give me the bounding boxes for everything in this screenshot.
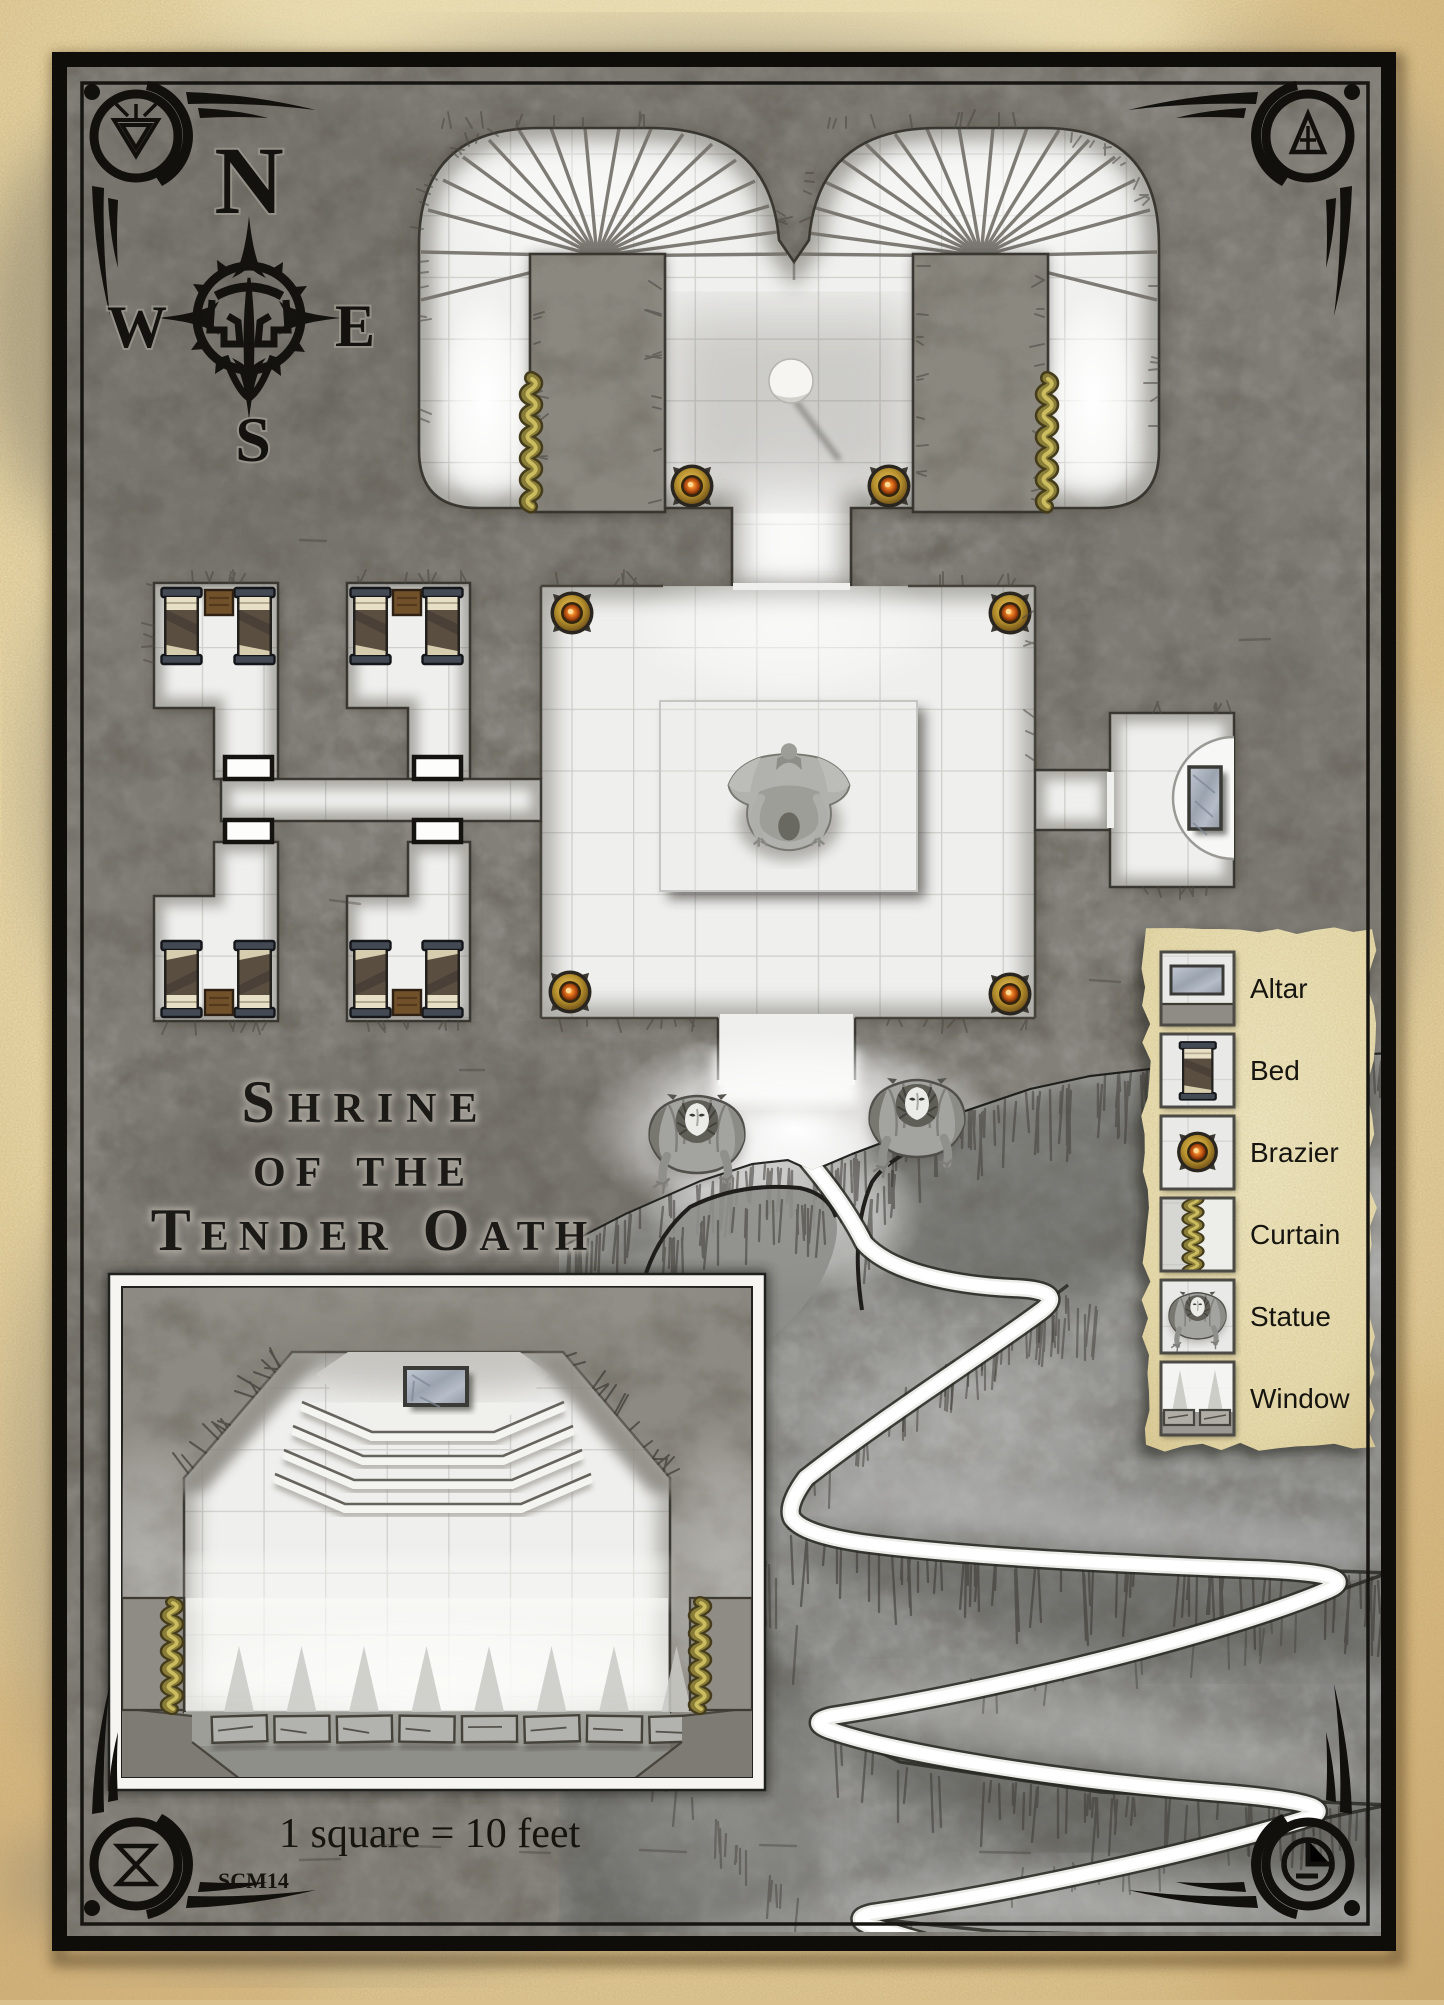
svg-text:W: W — [107, 294, 167, 360]
svg-text:N: N — [214, 127, 283, 234]
svg-text:S: S — [235, 404, 271, 475]
svg-text:Shrine: Shrine — [241, 1069, 490, 1135]
svg-text:Statue: Statue — [1250, 1301, 1331, 1332]
svg-text:of the: of the — [253, 1133, 475, 1199]
svg-text:Window: Window — [1250, 1383, 1350, 1414]
svg-text:Brazier: Brazier — [1250, 1137, 1339, 1168]
svg-text:Bed: Bed — [1250, 1055, 1300, 1086]
svg-text:Tender Oath: Tender Oath — [151, 1197, 598, 1263]
svg-text:Curtain: Curtain — [1250, 1219, 1340, 1250]
svg-text:E: E — [335, 293, 375, 359]
svg-text:1 square = 10 feet: 1 square = 10 feet — [279, 1811, 581, 1857]
svg-text:Altar: Altar — [1250, 973, 1308, 1004]
